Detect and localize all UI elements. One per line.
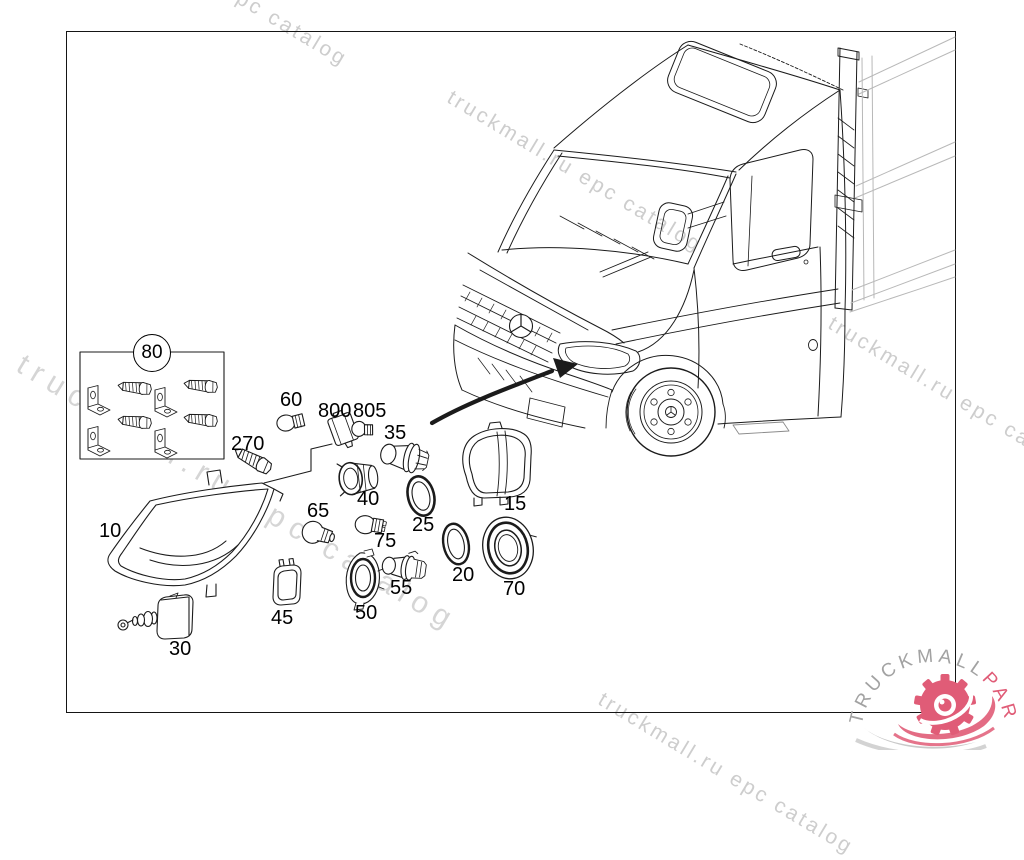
headlamp-drawing — [108, 470, 283, 597]
control-module-drawing — [273, 559, 301, 606]
callout-35[interactable]: 35 — [384, 423, 406, 443]
sealing-ring-upper-drawing — [404, 473, 439, 518]
callout-45[interactable]: 45 — [271, 608, 293, 628]
retainer-ring-drawing — [346, 549, 384, 610]
callout-800[interactable]: 800 — [318, 401, 351, 421]
truckmall-logo: TRUCKMALLPARTS — [836, 628, 1024, 750]
callout-10[interactable]: 10 — [99, 521, 121, 541]
callout-50[interactable]: 50 — [355, 603, 377, 623]
callout-270[interactable]: 270 — [231, 434, 264, 454]
callout-60[interactable]: 60 — [280, 390, 302, 410]
callout-25[interactable]: 25 — [412, 515, 434, 535]
callout-20[interactable]: 20 — [452, 565, 474, 585]
callout-15[interactable]: 15 — [504, 494, 526, 514]
sealing-ring-lower-drawing — [440, 521, 473, 566]
callout-75[interactable]: 75 — [374, 531, 396, 551]
callout-805[interactable]: 805 — [353, 401, 386, 421]
bulb-small-drawing — [276, 413, 305, 432]
bulb-wiring — [264, 444, 332, 483]
bulb-p21w-drawing — [300, 519, 337, 548]
sealing-cap-drawing — [477, 511, 544, 583]
callout-55[interactable]: 55 — [390, 578, 412, 598]
epc-diagram-page: { "watermark": { "text": "truckmall.ru e… — [0, 0, 1024, 750]
levelling-motor-drawing — [118, 593, 193, 639]
callout-80-label: 80 — [141, 342, 162, 364]
callout-70[interactable]: 70 — [503, 579, 525, 599]
callout-80[interactable]: 80 — [133, 334, 171, 372]
van-illustration — [454, 37, 955, 456]
logo-gear-icon — [914, 674, 977, 736]
callout-30[interactable]: 30 — [169, 639, 191, 659]
callout-arrow — [432, 358, 578, 423]
callout-40[interactable]: 40 — [357, 489, 379, 509]
callout-65[interactable]: 65 — [307, 501, 329, 521]
